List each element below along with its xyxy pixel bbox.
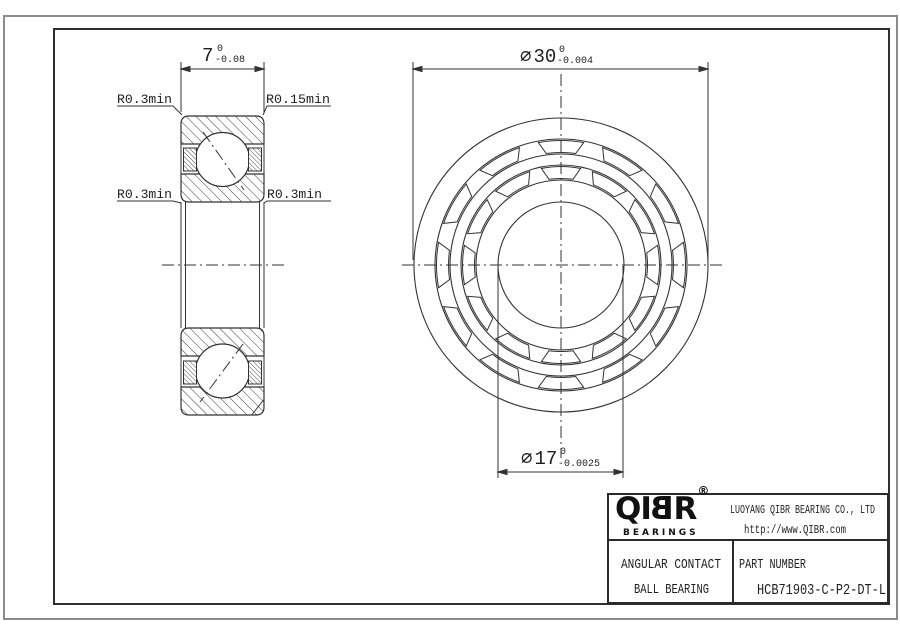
drawing-frame xyxy=(54,29,889,604)
bearing-type-line2: BALL BEARING xyxy=(634,582,709,598)
cage-pocket xyxy=(629,296,654,330)
qibr-logo-subtext: BEARINGS xyxy=(623,528,699,538)
cage-upper-right xyxy=(249,148,262,171)
drawing-sheet: 7 0 -0.08 ∅30 0 -0.004 ∅17 0 -0.0025 R0.… xyxy=(0,0,900,636)
cage-pocket xyxy=(650,307,678,346)
company-website: http://www.QIBR.com xyxy=(744,523,846,537)
cage-pocket xyxy=(468,296,493,330)
width-dim-value: 7 xyxy=(202,45,213,67)
cage-lower-left xyxy=(184,361,197,384)
cage-pocket xyxy=(629,200,654,234)
width-tol-lower: -0.08 xyxy=(215,55,245,66)
radius-label-mid-left: R0.3min xyxy=(117,187,172,202)
cage-pocket xyxy=(480,148,519,176)
front-view xyxy=(402,74,722,458)
width-tol-upper: 0 xyxy=(217,44,223,55)
bearing-type-line1: ANGULAR CONTACT xyxy=(621,557,721,573)
cage-pocket xyxy=(603,354,642,382)
od-tol-upper: 0 xyxy=(559,45,565,56)
bore-tol-upper: 0 xyxy=(560,447,566,458)
cage-pocket xyxy=(592,172,626,197)
bore-dim-value: ∅17 xyxy=(521,448,557,470)
cage-lower-right xyxy=(249,361,262,384)
qibr-logo: QIBR® xyxy=(615,494,708,525)
cage-pocket xyxy=(496,333,530,358)
cage-pocket xyxy=(468,200,493,234)
od-tol-lower: -0.004 xyxy=(557,56,593,67)
registered-mark-icon: ® xyxy=(697,484,709,498)
cage-pocket xyxy=(603,148,642,176)
radius-label-top-left: R0.3min xyxy=(117,92,172,107)
cage-pocket xyxy=(650,184,678,223)
company-name: LUOYANG QIBR BEARING CO., LTD xyxy=(730,503,875,517)
bore-tol-lower: -0.0025 xyxy=(558,459,600,470)
technical-drawing: 7 0 -0.08 ∅30 0 -0.004 ∅17 0 -0.0025 R0.… xyxy=(0,0,900,636)
radius-label-top-right: R0.15min xyxy=(266,92,330,107)
part-number-value: HCB71903-C-P2-DT-L xyxy=(757,582,886,599)
cage-pocket xyxy=(496,172,530,197)
cage-pocket xyxy=(480,354,519,382)
od-dim-value: ∅30 xyxy=(520,46,556,68)
cage-pocket xyxy=(444,307,472,346)
cross-section-view xyxy=(162,116,284,415)
cage-upper-left xyxy=(184,148,197,171)
part-number-label: PART NUMBER xyxy=(739,557,806,573)
radius-label-mid-right: R0.3min xyxy=(267,187,322,202)
cage-pocket xyxy=(592,333,626,358)
cage-pocket xyxy=(444,184,472,223)
